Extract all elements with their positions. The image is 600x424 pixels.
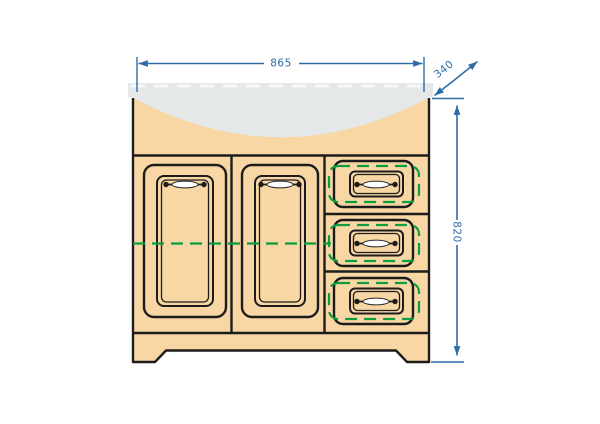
drawer-3 [329,278,419,324]
dimension-height-label: 820 [451,221,463,243]
dimension-depth: 340 [432,58,478,95]
vanity-drawing: 865 340 820 [0,0,600,424]
dimension-width-label: 865 [270,58,292,70]
dimension-depth-line-a [435,79,457,96]
technical-drawing-canvas: 865 340 820 [0,0,600,424]
door-left [144,165,226,317]
drawer-1 [329,161,419,207]
dimension-depth-label: 340 [432,58,456,81]
drawer-2 [329,220,419,266]
dimension-height: 820 [431,99,464,363]
door-right [242,165,318,317]
dimension-depth-line-b [456,62,478,79]
